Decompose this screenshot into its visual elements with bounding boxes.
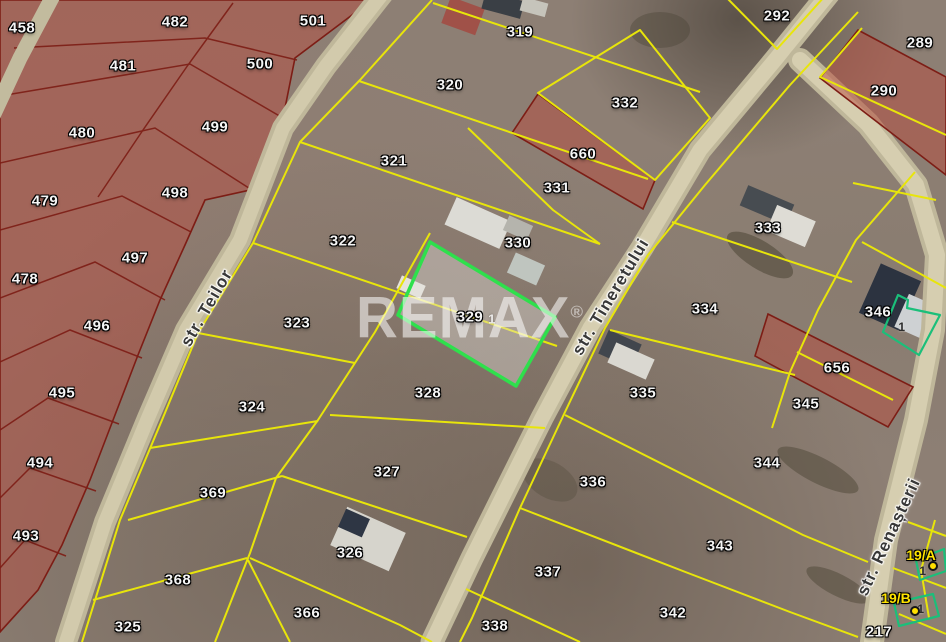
cadastral-map[interactable]: str. Teilorstr. Tineretuluistr. Renașter…: [0, 0, 946, 642]
map-graphics: [0, 0, 946, 642]
building-outline-19a: [916, 549, 946, 580]
building-outline-19b: [894, 594, 939, 626]
